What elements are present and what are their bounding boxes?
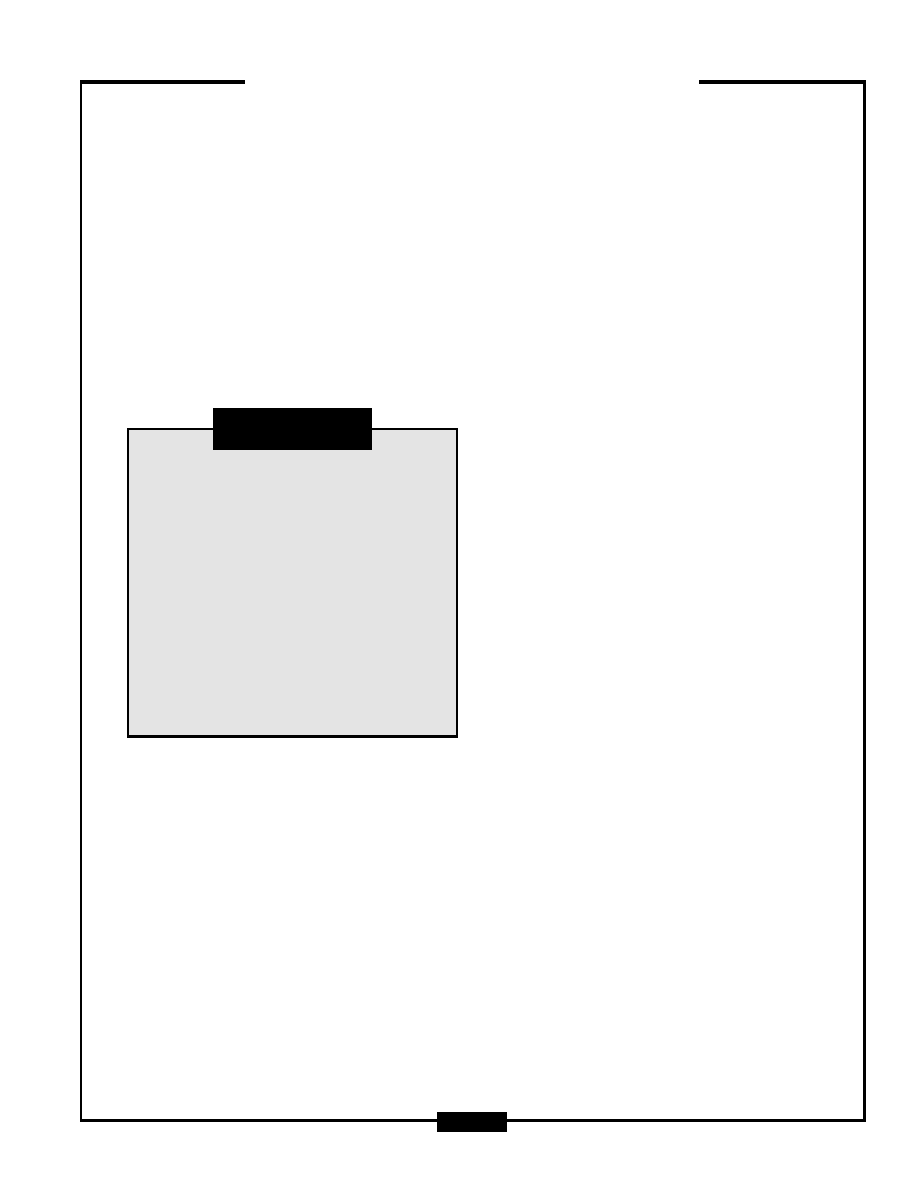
caption-redaction-bar <box>213 408 372 450</box>
page-number-block <box>437 1112 507 1132</box>
figure-placeholder-box <box>127 428 458 738</box>
scanned-page <box>0 0 918 1188</box>
